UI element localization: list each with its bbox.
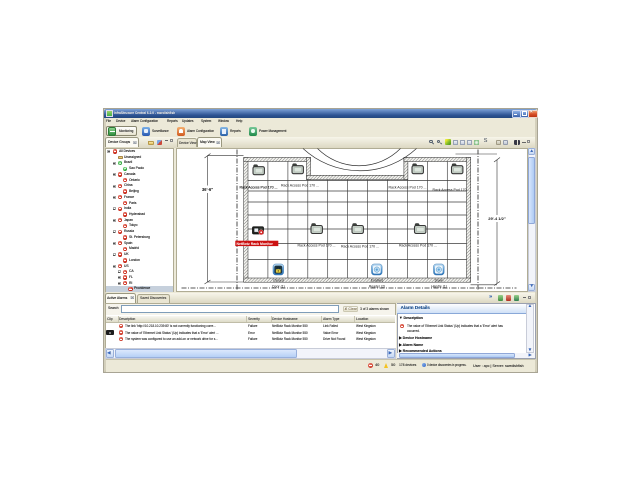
svg-text:Rack Access Pod 170 ...: Rack Access Pod 170 ...	[297, 243, 335, 247]
svg-text:Down: Down	[434, 278, 443, 282]
svg-text:Rack Access Pod 170 ...: Rack Access Pod 170 ...	[432, 188, 470, 192]
svg-text:NetBotz Rack Monitor: NetBotz Rack Monitor	[236, 241, 273, 245]
svg-text:Rack Access Pod 170 ...: Rack Access Pod 170 ...	[281, 183, 319, 187]
svg-text:Handle (1): Handle (1)	[431, 284, 447, 288]
svg-text:Door (1): Door (1)	[272, 284, 284, 288]
svg-text:Enabled: Enabled	[370, 278, 383, 282]
svg-text:36'-6": 36'-6"	[201, 187, 212, 192]
svg-text:Rack Access Pod 170 ...: Rack Access Pod 170 ...	[239, 185, 277, 189]
svg-text:Closed: Closed	[273, 278, 284, 282]
svg-text:Reader (2): Reader (2)	[368, 284, 384, 288]
svg-text:29'-4 1/2": 29'-4 1/2"	[488, 216, 506, 221]
svg-text:Rack Access Pod 170 ...: Rack Access Pod 170 ...	[388, 185, 426, 189]
svg-text:Rack Access Pod 170 ...: Rack Access Pod 170 ...	[341, 244, 379, 248]
svg-text:Rack Access Pod 170 ...: Rack Access Pod 170 ...	[399, 243, 437, 247]
